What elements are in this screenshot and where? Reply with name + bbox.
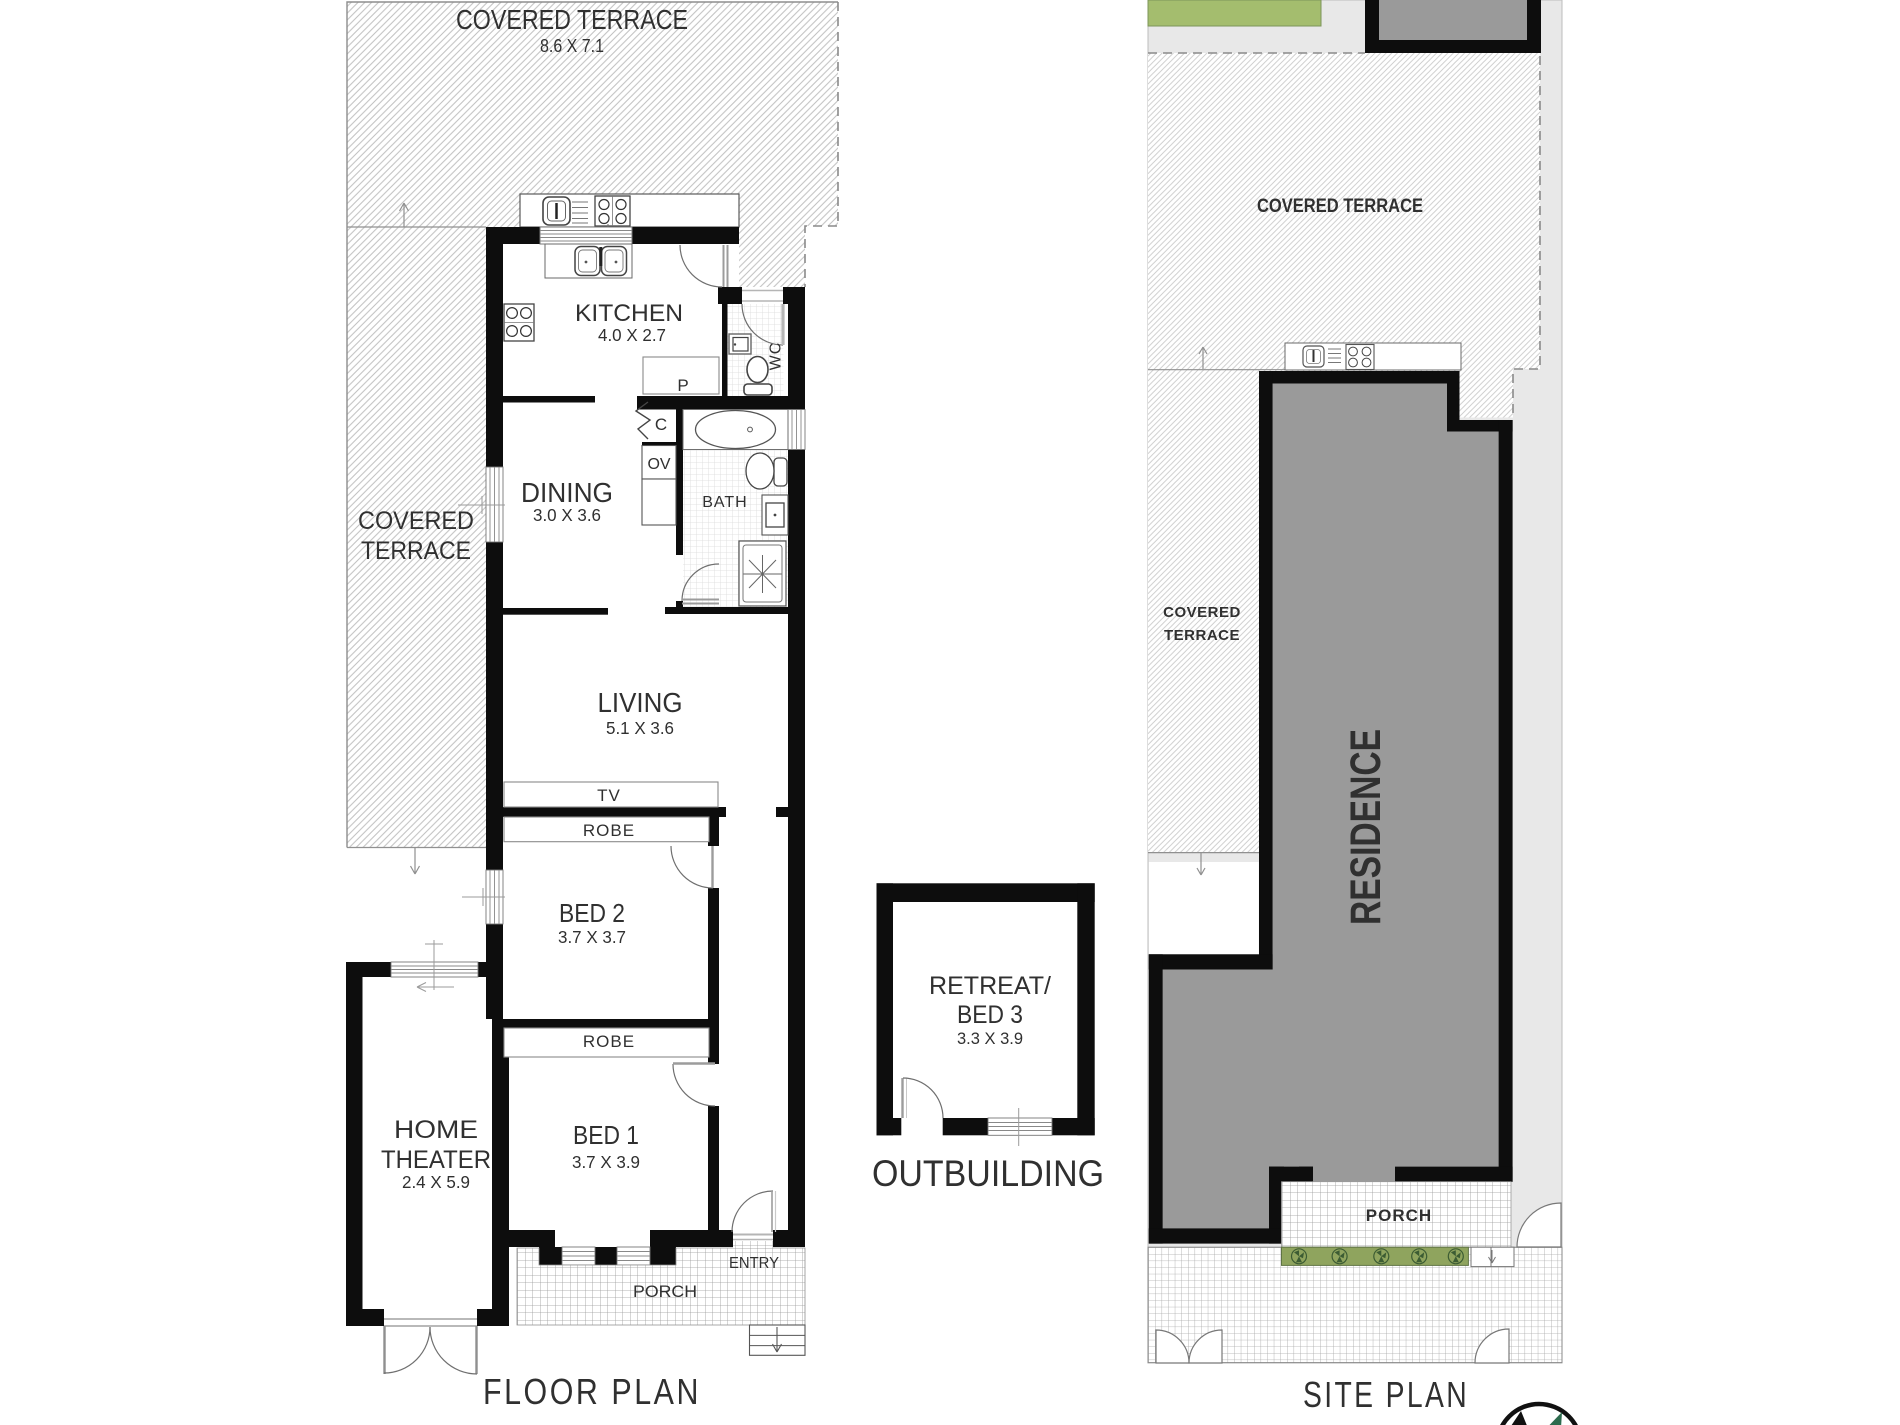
svg-text:WC: WC xyxy=(768,342,785,371)
svg-text:BATH: BATH xyxy=(702,494,747,511)
svg-text:THEATER: THEATER xyxy=(381,1146,491,1174)
svg-text:COVERED: COVERED xyxy=(358,507,474,535)
svg-text:BED 3: BED 3 xyxy=(957,1001,1023,1029)
svg-text:3.7 X 3.9: 3.7 X 3.9 xyxy=(572,1152,640,1172)
svg-text:LIVING: LIVING xyxy=(598,687,683,718)
svg-text:ROBE: ROBE xyxy=(583,1032,635,1051)
svg-text:8.6 X 7.1: 8.6 X 7.1 xyxy=(540,36,604,56)
svg-text:BED 2: BED 2 xyxy=(559,898,625,928)
svg-text:TV: TV xyxy=(597,786,621,805)
svg-text:HOME: HOME xyxy=(394,1116,478,1144)
svg-text:FLOOR PLAN: FLOOR PLAN xyxy=(483,1371,701,1412)
svg-text:PORCH: PORCH xyxy=(1366,1206,1432,1225)
svg-text:3.0 X 3.6: 3.0 X 3.6 xyxy=(533,505,601,525)
svg-text:5.1 X 3.6: 5.1 X 3.6 xyxy=(606,718,674,738)
svg-text:RETREAT/: RETREAT/ xyxy=(929,972,1051,1000)
svg-text:ENTRY: ENTRY xyxy=(729,1255,779,1272)
svg-text:DINING: DINING xyxy=(521,477,613,508)
svg-text:BED 1: BED 1 xyxy=(573,1120,639,1150)
svg-text:PORCH: PORCH xyxy=(633,1282,697,1301)
svg-text:TERRACE: TERRACE xyxy=(1164,627,1240,644)
svg-text:KITCHEN: KITCHEN xyxy=(575,300,683,327)
svg-text:RESIDENCE: RESIDENCE xyxy=(1342,729,1390,925)
svg-text:3.7 X 3.7: 3.7 X 3.7 xyxy=(558,927,626,947)
svg-text:4.0 X 2.7: 4.0 X 2.7 xyxy=(598,325,666,345)
svg-text:COVERED TERRACE: COVERED TERRACE xyxy=(1257,196,1423,217)
svg-text:SITE PLAN: SITE PLAN xyxy=(1303,1374,1469,1415)
svg-text:COVERED: COVERED xyxy=(1163,604,1241,621)
svg-text:ROBE: ROBE xyxy=(583,821,635,840)
svg-text:TERRACE: TERRACE xyxy=(361,537,471,565)
svg-text:C: C xyxy=(655,415,667,434)
svg-text:3.3 X 3.9: 3.3 X 3.9 xyxy=(957,1029,1023,1048)
svg-text:COVERED TERRACE: COVERED TERRACE xyxy=(456,4,688,35)
svg-text:OUTBUILDING: OUTBUILDING xyxy=(872,1153,1104,1194)
svg-text:P: P xyxy=(677,376,688,395)
svg-text:OV: OV xyxy=(647,456,670,473)
svg-text:2.4 X 5.9: 2.4 X 5.9 xyxy=(402,1172,470,1192)
